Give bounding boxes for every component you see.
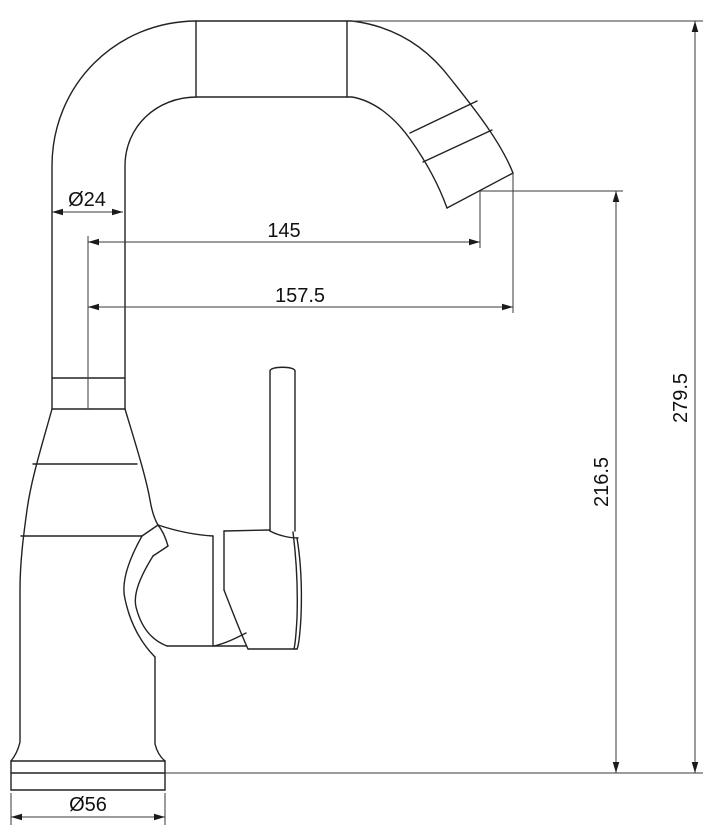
dim-overall-height: 279.5 [670,21,698,773]
dim-label-outlet-height: 216.5 [591,457,613,507]
arrowhead-right [112,209,123,216]
body-right-neck-edge [125,409,158,525]
neck-wedge-bottom [153,546,168,556]
aerator-joint-line-1 [410,101,477,133]
technical-drawing-canvas: Ø24 145 157.5 216.5 [0,0,719,839]
spout-inner-edge [125,97,447,409]
housing-top-edge [224,530,270,531]
dim-label-reach-tip: 157.5 [275,285,325,307]
arrowhead-bottom [692,762,699,773]
dim-label-overall-height: 279.5 [670,373,692,423]
dim-reach-to-tip: 157.5 [88,173,513,313]
faucet-dimension-drawing: Ø24 145 157.5 216.5 [0,0,719,839]
arrowhead-top [692,21,699,32]
arrowhead-top [613,191,620,202]
dim-label-base-diameter: Ø56 [69,794,107,816]
waist-outer-curve [124,536,155,657]
dimension-annotations: Ø24 145 157.5 216.5 [11,21,703,825]
lower-column-right-edge [155,657,165,761]
arrowhead-bottom [613,762,620,773]
arrowhead-left [88,239,99,246]
handle-rod-top-cap [270,367,295,371]
arrowhead-left [88,304,99,311]
aerator-joint-line-2 [423,130,492,162]
arrowhead-left [11,814,22,821]
arrowhead-left [52,209,63,216]
waist-inner-curve [135,556,167,646]
dim-label-spout-diameter: Ø24 [68,189,106,211]
arrowhead-right [154,814,165,821]
body-left-edge [11,409,52,761]
housing-lower-left-diagonal [224,590,248,649]
dim-outlet-height: 216.5 [480,191,623,773]
dim-label-reach-outlet: 145 [267,220,300,242]
neck-bridge-top-edge [158,525,213,536]
dim-spout-tube-diameter: Ø24 [52,189,123,215]
arrowhead-right [502,304,513,311]
spout-outer-edge [52,21,513,409]
dim-base-diameter: Ø56 [11,793,165,825]
faucet-outline [11,21,513,790]
arrowhead-right [469,239,480,246]
housing-right-inner-edge [293,532,297,649]
neck-wedge-top [142,525,158,536]
